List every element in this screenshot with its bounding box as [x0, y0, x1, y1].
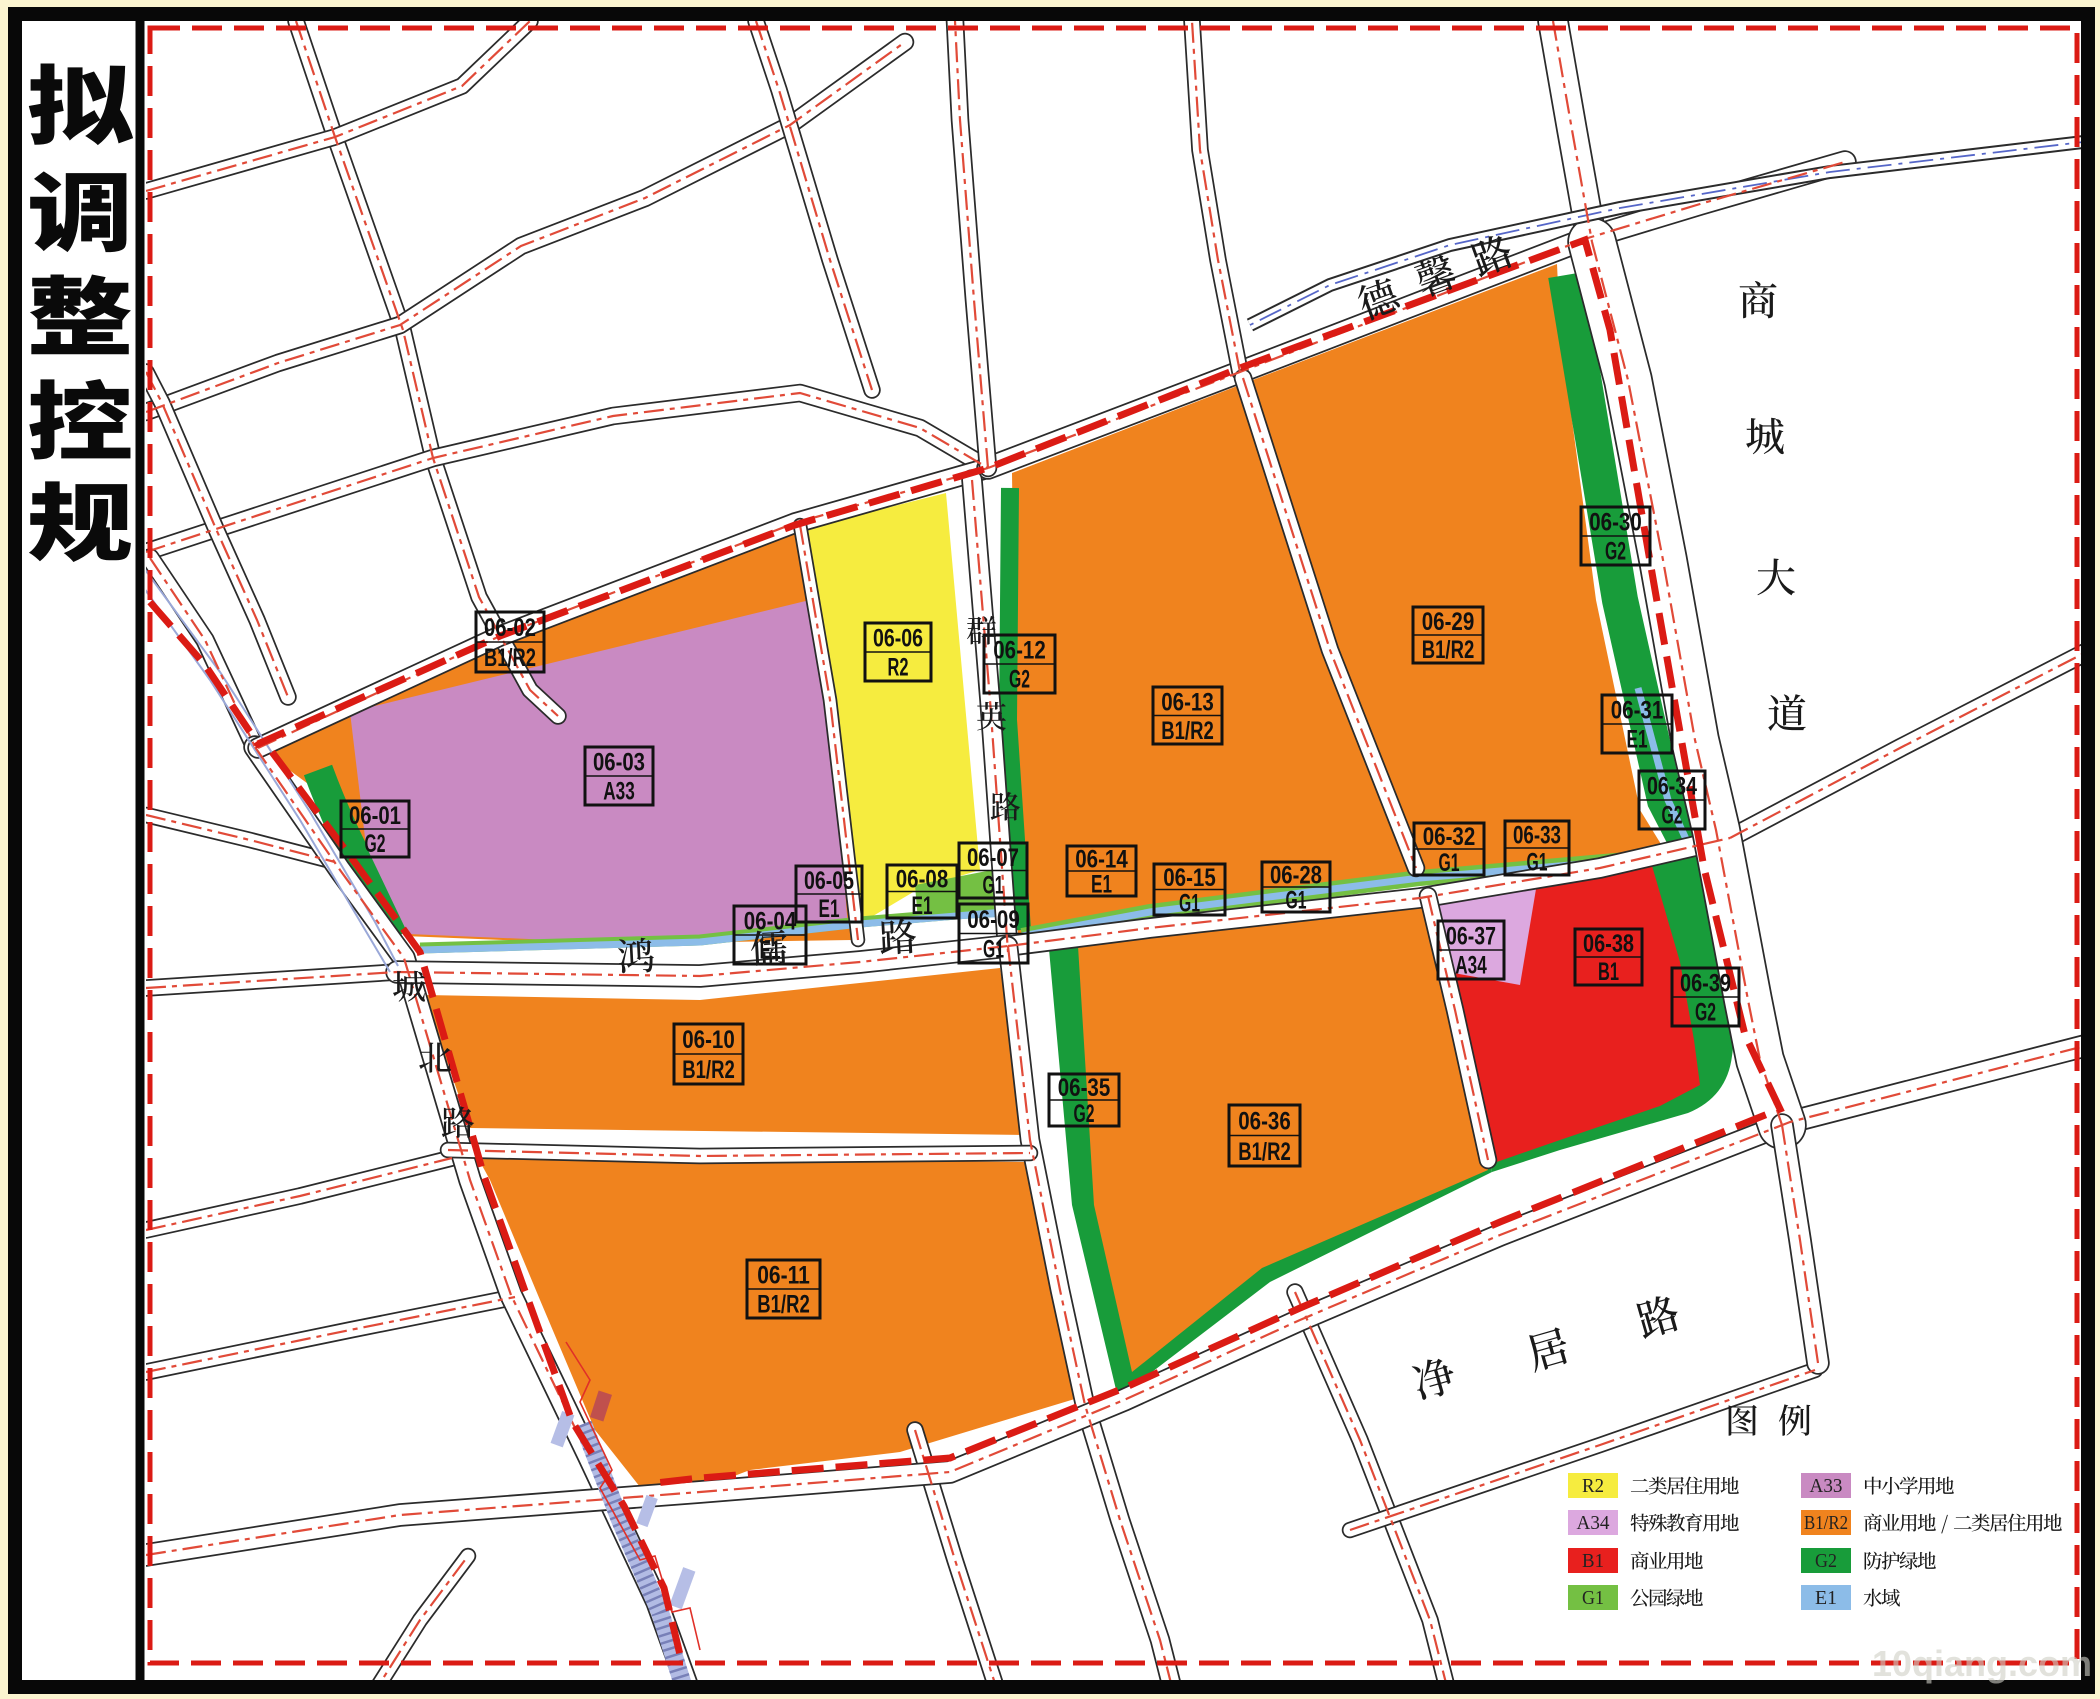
svg-text:06-03: 06-03	[593, 749, 645, 777]
svg-text:06-11: 06-11	[757, 1262, 810, 1290]
svg-text:E1: E1	[1815, 1587, 1837, 1609]
svg-text:06-04: 06-04	[744, 908, 797, 936]
svg-text:06-02: 06-02	[484, 614, 536, 642]
svg-text:06-14: 06-14	[1075, 846, 1128, 874]
svg-text:06-35: 06-35	[1058, 1074, 1111, 1102]
svg-text:06-01: 06-01	[349, 802, 401, 830]
svg-text:E1: E1	[1091, 871, 1112, 899]
svg-text:06-37: 06-37	[1446, 923, 1496, 951]
svg-text:10qiang.com: 10qiang.com	[1872, 1643, 2092, 1684]
svg-text:G2: G2	[1815, 1550, 1837, 1572]
svg-text:A33: A33	[1810, 1475, 1843, 1497]
svg-text:G2: G2	[1009, 666, 1030, 694]
svg-text:E1: E1	[1627, 726, 1648, 754]
svg-text:G1: G1	[1179, 889, 1200, 917]
svg-text:G1: G1	[1527, 849, 1548, 877]
svg-text:B1/R2: B1/R2	[1422, 636, 1475, 664]
svg-text:A33: A33	[603, 778, 635, 806]
svg-text:A34: A34	[1577, 1512, 1610, 1534]
svg-text:G1: G1	[1286, 887, 1307, 915]
svg-text:06-36: 06-36	[1238, 1107, 1291, 1135]
svg-text:G2: G2	[1695, 999, 1716, 1027]
svg-text:G1: G1	[1582, 1587, 1604, 1609]
svg-text:06-38: 06-38	[1583, 930, 1634, 958]
svg-text:G1: G1	[1439, 849, 1460, 877]
svg-text:06-33: 06-33	[1513, 822, 1561, 850]
svg-text:06-28: 06-28	[1270, 862, 1322, 890]
svg-text:06-10: 06-10	[682, 1026, 735, 1054]
svg-text:G1: G1	[983, 871, 1004, 899]
svg-text:G2: G2	[1074, 1100, 1095, 1128]
svg-text:06-13: 06-13	[1161, 688, 1214, 716]
svg-text:B1/R2: B1/R2	[1161, 717, 1214, 745]
svg-text:B1: B1	[1598, 958, 1619, 986]
svg-text:06-09: 06-09	[967, 906, 1020, 934]
svg-text:B1/R2: B1/R2	[1238, 1138, 1291, 1166]
svg-text:G2: G2	[1662, 802, 1683, 830]
svg-text:06-32: 06-32	[1423, 823, 1476, 851]
svg-text:R2: R2	[888, 654, 909, 682]
svg-text:A34: A34	[1455, 952, 1487, 980]
svg-text:E1: E1	[912, 892, 933, 920]
svg-text:06-39: 06-39	[1680, 970, 1731, 998]
svg-text:B1/R2: B1/R2	[757, 1291, 810, 1319]
svg-text:06-34: 06-34	[1647, 773, 1697, 801]
svg-text:06-15: 06-15	[1163, 864, 1216, 892]
svg-text:B1: B1	[1582, 1550, 1604, 1572]
svg-text:06-30: 06-30	[1589, 509, 1642, 537]
svg-text:06-05: 06-05	[804, 867, 854, 895]
svg-text:06-07: 06-07	[967, 844, 1019, 872]
svg-text:B1/R2: B1/R2	[484, 644, 536, 672]
svg-text:G1: G1	[983, 935, 1004, 963]
svg-text:E1: E1	[819, 895, 840, 923]
svg-text:B1/R2: B1/R2	[682, 1056, 735, 1084]
svg-text:06-29: 06-29	[1422, 608, 1475, 636]
svg-text:B1/R2: B1/R2	[1804, 1512, 1848, 1534]
svg-text:06-31: 06-31	[1611, 697, 1664, 725]
svg-text:G2: G2	[365, 830, 386, 858]
svg-text:06-06: 06-06	[873, 625, 923, 653]
svg-text:06-08: 06-08	[896, 865, 949, 893]
svg-text:G2: G2	[1605, 538, 1626, 566]
svg-text:R2: R2	[1582, 1475, 1604, 1497]
svg-text:06-12: 06-12	[993, 637, 1046, 665]
